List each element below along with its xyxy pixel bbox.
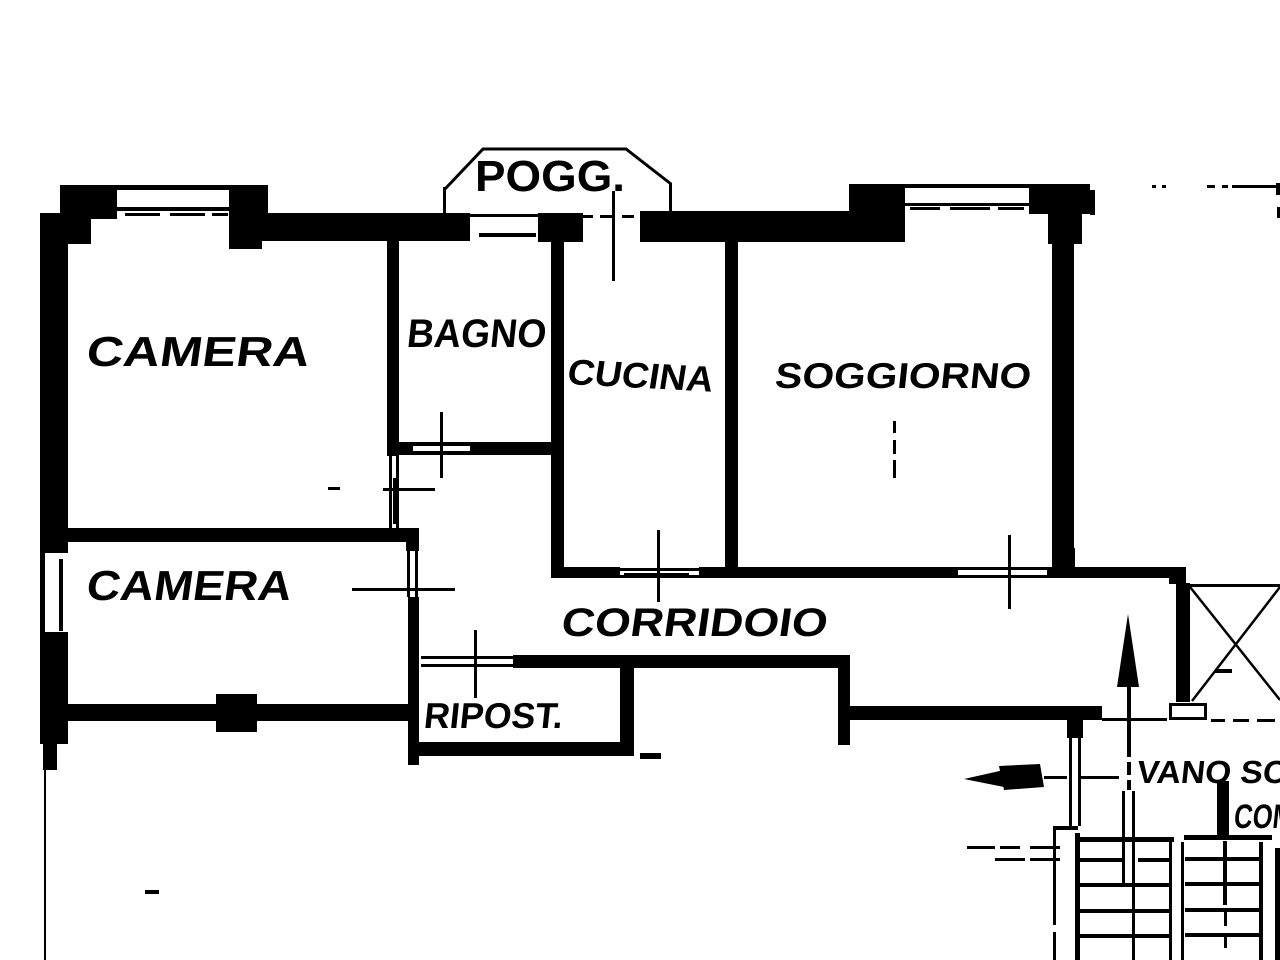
svg-text:COM: COM: [1232, 798, 1280, 836]
svg-text:POGG.: POGG.: [475, 152, 625, 201]
svg-text:CORRIDOIO: CORRIDOIO: [559, 600, 831, 645]
svg-text:VANO SC: VANO SC: [1135, 754, 1280, 790]
svg-text:CAMERA: CAMERA: [84, 562, 296, 609]
svg-text:RIPOST.: RIPOST.: [422, 695, 565, 736]
svg-text:SOGGIORNO: SOGGIORNO: [773, 355, 1033, 396]
svg-text:BAGNO: BAGNO: [405, 312, 549, 356]
svg-text:CAMERA: CAMERA: [84, 328, 314, 375]
svg-text:CUCINA: CUCINA: [565, 351, 717, 399]
